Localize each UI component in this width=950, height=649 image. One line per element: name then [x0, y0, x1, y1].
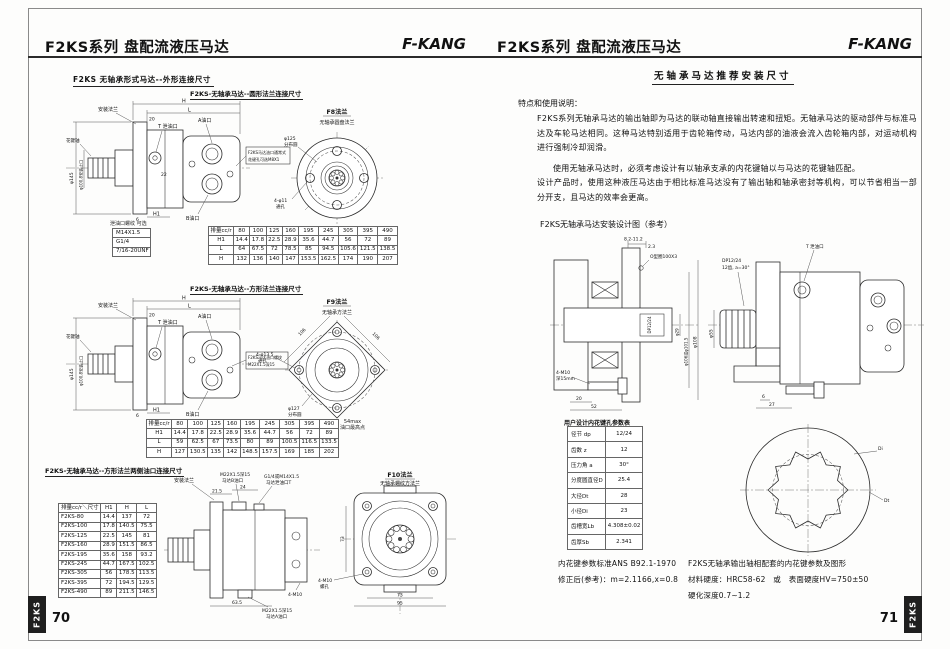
table-cell: 129.5	[137, 579, 157, 588]
spline-match-note: F2KS无轴承输出轴相配套的内花键参数及图形 材料硬度：HRC58-62 或 表…	[688, 556, 923, 604]
table-cell: 排量cc/r＼尺寸	[59, 504, 101, 513]
table-cell: 116.5	[299, 438, 319, 447]
edge-dim-label: 106	[297, 327, 307, 337]
table-row: 排量cc/r80100125160195245305395490	[209, 227, 398, 236]
table-cell: 89	[319, 429, 339, 438]
table-cell: F2KS-125	[59, 532, 101, 541]
table-cell: 73.5	[224, 438, 240, 447]
table-cell: 44.7	[101, 560, 117, 569]
dim-label: 20	[149, 117, 155, 123]
table-cell: 59	[172, 438, 188, 447]
table-row: F2KS-16028.9151.586.5	[59, 541, 157, 550]
table-cell: 211.5	[117, 588, 137, 597]
dim-label: 73	[340, 536, 346, 542]
table-cell: 35.6	[240, 429, 260, 438]
table-cell: H1	[147, 429, 172, 438]
table-cell: 89	[101, 588, 117, 597]
table-cell: 56	[280, 429, 300, 438]
table-cell: 85	[299, 245, 319, 254]
dim-label: φ145	[69, 172, 75, 184]
table-cell: 压力角 a	[568, 457, 606, 472]
table-cell: F2KS-305	[59, 569, 101, 578]
table-row: G1/4	[113, 238, 151, 247]
table-cell: 102.5	[137, 560, 157, 569]
callout-drain-port: T 泄油口	[157, 319, 178, 326]
table-cell: 22.5	[208, 429, 224, 438]
dim-label: φ106或φ101.5	[683, 337, 689, 366]
table-cell: 12/24	[605, 427, 643, 442]
round-flange-view: F8法兰 无轴承圆盘法兰 φ125 分布圆 4-φ11 通孔	[274, 108, 383, 224]
table-row: F2KS-19535.615893.2	[59, 551, 157, 560]
table-cell: 75.5	[137, 522, 157, 531]
table-cell: 127	[172, 448, 188, 457]
dim-label: H	[182, 99, 186, 105]
round-flange-drawing: H L 20 22 H1 6 φ145 φ100.8安装止口 花键轴 安装法兰 …	[60, 96, 400, 226]
table-cell: 146.5	[137, 588, 157, 597]
dim-label: 20	[576, 396, 582, 402]
table-cell: 28.9	[224, 429, 240, 438]
spline-param-table: 径节 dp12/24齿数 z12压力角 a30°分度圆直径D25.4大径Dt28…	[567, 426, 643, 550]
std-note-line1: 内花键参数标准ANS B92.1-1970	[558, 559, 676, 568]
callout-bolt-circle: φ127	[288, 406, 300, 412]
table-cell: 17.8	[250, 236, 266, 245]
callout-drain-port: T 泄油口	[157, 123, 178, 130]
table-cell: 158	[117, 551, 137, 560]
table-cell: 147	[282, 255, 298, 264]
table-cell: 100	[250, 227, 266, 236]
flange-name-label: F9法兰	[327, 298, 348, 306]
callout-port-b: B油口	[186, 215, 199, 222]
table-cell: 72	[266, 245, 282, 254]
table-cell: 23	[605, 503, 643, 518]
dim-label: φ145	[69, 368, 75, 380]
callout-spline: DP12/24	[722, 258, 741, 264]
table-cell: 齿数 z	[568, 442, 606, 457]
table-row: 小径Di23	[568, 503, 643, 518]
callout-port-b: 马达B油口	[222, 477, 243, 484]
motor-side-view: φ55 DP12/24 12齿, a=30° T 泄油口 6 27	[708, 243, 924, 408]
table-cell: 121.5	[358, 245, 378, 254]
table-cell: 14.4	[101, 513, 117, 522]
callout-bolt-circle: 分布圆	[288, 411, 302, 418]
table-cell: 202	[319, 448, 339, 457]
table-cell: 178.5	[117, 569, 137, 578]
dim-label: 20	[149, 313, 155, 319]
table-cell: 135	[208, 448, 224, 457]
dim-label: 22	[161, 172, 167, 178]
dim-label: 6	[762, 394, 765, 400]
table-cell: 153.5	[299, 255, 319, 264]
table-cell: 44.7	[318, 236, 338, 245]
dual-port-drawing: 安装法兰 M22X1.5深15 马达B油口 G1/4或M14X1.5 马达泄油口…	[160, 470, 470, 620]
callout-port-a: M22X1.5深15	[262, 607, 292, 614]
dim-label: Dt	[884, 498, 889, 504]
table-cell: 148.5	[240, 448, 260, 457]
right-page-number: 71	[876, 611, 898, 626]
dim-label: 63.5	[232, 600, 242, 606]
model-dim-table: 排量cc/r＼尺寸H1HLF2KS-8014.413772F2KS-10017.…	[58, 503, 157, 598]
std-note-line2: 修正后(参考)：m=2.1166,x=0.8	[558, 575, 678, 584]
table-cell: 大径Dt	[568, 488, 606, 503]
callout-port-b: B油口	[186, 411, 199, 418]
table-cell: 113.5	[137, 569, 157, 578]
callout-bolt-circle: φ125	[284, 136, 296, 142]
table-cell: 160	[224, 420, 240, 429]
spline-profile-drawing: Di Dt	[738, 422, 930, 560]
table-cell: 169	[280, 448, 300, 457]
table-cell: 167.5	[117, 560, 137, 569]
table-cell: 22.5	[266, 236, 282, 245]
table-cell: 28	[605, 488, 643, 503]
table-cell: 100	[188, 420, 208, 429]
table-cell: 35.6	[299, 236, 319, 245]
square-flange-drawing: H L 20 H1 6 φ145 φ100.8安装止口 花键轴 安装法兰 T 泄…	[60, 294, 400, 418]
table-cell: L	[209, 245, 234, 254]
table-row: 齿厚Sb2.341	[568, 534, 643, 549]
spline-mark-label: DP12/24	[647, 316, 652, 333]
flange-desc-label: 无轴承方法兰	[322, 309, 352, 316]
header-rule	[28, 56, 922, 58]
f10-flange-view: F10法兰 无轴承螺纹方法兰 73 73 95 4-M10 螺孔	[318, 471, 458, 614]
callout-drain: 马达泄油口T	[266, 479, 291, 486]
table-cell: 140.5	[117, 522, 137, 531]
callout-bolt-holes: 通孔	[276, 203, 285, 210]
table-row: F2KS-39572194.5129.5	[59, 579, 157, 588]
table-cell: F2KS-245	[59, 560, 101, 569]
callout-bolts: 深15mm	[556, 375, 575, 382]
table-cell: H1	[101, 504, 117, 513]
table-cell: L	[147, 438, 172, 447]
table-row: H127130.5135142148.5157.5169185202	[147, 448, 339, 457]
table-cell: M14X1.5	[113, 229, 151, 238]
table-cell: 17.8	[101, 522, 117, 531]
table-cell: 齿槽宽Lb	[568, 519, 606, 534]
intro-p1: F2KS系列无轴承马达的输出轴即为马达的联动轴直接输出转速和扭矩。无轴承马达的驱…	[537, 112, 917, 156]
callout-bolt-holes: 4-φ13.5	[256, 352, 274, 358]
note-54-desc: 油口最高点	[340, 425, 365, 431]
dim-label: 52	[591, 404, 597, 410]
left-page-title: F2KS系列 盘配流液压马达	[45, 36, 229, 57]
table-cell: 395	[358, 227, 378, 236]
table-cell: 137	[117, 513, 137, 522]
callout-drain: T 泄油口	[805, 243, 824, 250]
table-cell: 72	[101, 579, 117, 588]
table-row: L5962.56773.58089100.5116.5133.5	[147, 438, 339, 447]
dim-label: φ100.8安装止口	[78, 160, 84, 190]
table-row: 排量cc/r80100125160195245305395490	[147, 420, 339, 429]
table-cell: 64	[234, 245, 250, 254]
table-cell: 305	[280, 420, 300, 429]
table-row: 大径Dt28	[568, 488, 643, 503]
table-cell: 157.5	[260, 448, 280, 457]
table-cell: 56	[338, 236, 358, 245]
dim-label: L	[188, 304, 191, 310]
dim-label: φ100.8安装止口	[78, 356, 84, 386]
table-cell: 133.5	[319, 438, 339, 447]
diagram-title: F2KS无轴承马达安装设计图（参考）	[540, 219, 672, 230]
square-dim-table: 排量cc/r80100125160195245305395490H114.417…	[146, 419, 339, 458]
table-cell: F2KS-160	[59, 541, 101, 550]
table-cell: 排量cc/r	[147, 420, 172, 429]
table-cell: 160	[282, 227, 298, 236]
table-cell: 94.5	[318, 245, 338, 254]
table-row: 径节 dp12/24	[568, 427, 643, 442]
flange-desc-label: 无轴承圆盘法兰	[319, 119, 354, 126]
table-row: 压力角 a30°	[568, 457, 643, 472]
callout-mount-flange: 安装法兰	[174, 477, 194, 484]
table-cell: 132	[234, 255, 250, 264]
table-cell: 56	[101, 569, 117, 578]
table-cell: 小径Di	[568, 503, 606, 518]
table-cell: 490	[319, 420, 339, 429]
table-cell: 81	[137, 532, 157, 541]
callout-port-a: A油口	[198, 117, 211, 124]
callout-oring: O型圈100X3	[650, 253, 677, 260]
table-row: H132136140147153.5162.5174190207	[209, 255, 398, 264]
match-note-line1: F2KS无轴承输出轴相配套的内花键参数及图形	[688, 559, 846, 568]
table-cell: H	[209, 255, 234, 264]
table-cell: F2KS-80	[59, 513, 101, 522]
table-row: H114.417.822.528.935.644.7567289	[209, 236, 398, 245]
table-cell: 305	[338, 227, 358, 236]
flange-name-label: F8法兰	[327, 108, 348, 116]
table-row: F2KS-8014.413772	[59, 513, 157, 522]
table-cell: 86.5	[137, 541, 157, 550]
match-note-line2: 材料硬度：HRC58-62 或 表面硬度HV=750±50	[688, 575, 869, 584]
install-drawing: DP12/24 8.2-11.2 2.3 O型圈100X3 φ29 φ106或φ…	[548, 236, 930, 416]
intro-paragraphs: F2KS系列无轴承马达的输出轴即为马达的联动轴直接输出转速和扭矩。无轴承马达的驱…	[537, 112, 917, 205]
table-cell: H	[147, 448, 172, 457]
dim-label: 24	[240, 485, 246, 491]
table-cell: 89	[378, 236, 398, 245]
flange-desc-label: 无轴承螺纹方法兰	[380, 480, 420, 487]
callout-spline-shaft: 花键轴	[66, 333, 80, 340]
dim-label: 21.5	[212, 489, 222, 495]
table-cell: 14.4	[172, 429, 188, 438]
table-cell: 2.341	[605, 534, 643, 549]
dim-label: 95	[397, 601, 403, 607]
table-cell: H	[117, 504, 137, 513]
callout-drain: G1/4或M14X1.5	[264, 473, 299, 480]
table-cell: 245	[318, 227, 338, 236]
callout-note: 花键孔可选M8X1	[248, 156, 280, 162]
motor-side-view	[66, 318, 250, 410]
table-cell: 排量cc/r	[209, 227, 234, 236]
section-title-outline-dims: F2KS 无轴承形式马达--外形连接尺寸	[73, 74, 214, 87]
table-cell: 径节 dp	[568, 427, 606, 442]
dim-label: 27	[769, 402, 775, 408]
table-cell: 490	[378, 227, 398, 236]
left-brand-logo: F-KANG	[358, 35, 466, 53]
table-cell: 22.5	[101, 532, 117, 541]
dim-label: H	[182, 296, 186, 302]
table-cell: 174	[338, 255, 358, 264]
callout-note: F2KS马达油口通常式	[248, 149, 286, 155]
callout-mount-flange: 安装法兰	[98, 106, 118, 113]
table-row: M14X1.5	[113, 229, 151, 238]
table-cell: 89	[260, 438, 280, 447]
motor-side-view	[164, 502, 320, 598]
right-page-title: F2KS系列 盘配流液压马达	[497, 36, 681, 57]
table-cell: 28.9	[101, 541, 117, 550]
table-row: L6467.57278.58594.5105.6121.5138.5	[209, 245, 398, 254]
table-cell: 125	[208, 420, 224, 429]
callout-bolts: 4-M10	[556, 370, 570, 376]
dim-label: H1	[153, 212, 160, 218]
table-row: 齿数 z12	[568, 442, 643, 457]
dim-label: φ55	[709, 329, 715, 338]
callout-bolt-holes: 4-M10	[318, 578, 332, 584]
table-cell: 138.5	[378, 245, 398, 254]
table-cell: 395	[299, 420, 319, 429]
table-cell: 195	[299, 227, 319, 236]
section-title-install-dims: 无轴承马达推荐安装尺寸	[652, 68, 794, 85]
table-cell: 30°	[605, 457, 643, 472]
table-cell: 105.6	[338, 245, 358, 254]
table-cell: 162.5	[318, 255, 338, 264]
table-cell: 130.5	[188, 448, 208, 457]
dim-label: H1	[153, 408, 160, 414]
table-cell: 100.5	[280, 438, 300, 447]
table-cell: 125	[266, 227, 282, 236]
dim-label: 73	[397, 593, 403, 599]
table-cell: 80	[172, 420, 188, 429]
table-cell: 78.5	[282, 245, 298, 254]
table-row: 排量cc/r＼尺寸H1HL	[59, 504, 157, 513]
table-row: F2KS-10017.8140.575.5	[59, 522, 157, 531]
edge-dim-label: 106	[371, 331, 381, 341]
dim-label: Di	[878, 446, 883, 452]
callout-bolt-holes: 螺孔	[320, 583, 329, 590]
table-row: F2KS-30556178.5113.5	[59, 569, 157, 578]
dim-label: 6	[136, 413, 139, 419]
callout-port-b: M22X1.5深15	[220, 471, 250, 478]
table-cell: 12	[605, 442, 643, 457]
thread-table-title: 泄油口螺纹 可选	[110, 221, 147, 227]
flange-name-label: F10法兰	[387, 471, 412, 479]
table-cell: F2KS-490	[59, 588, 101, 597]
table-cell: 195	[240, 420, 260, 429]
table-row: H114.417.822.528.935.644.7567289	[147, 429, 339, 438]
match-note-line3: 硬化深度0.7~1.2	[688, 591, 750, 600]
table-row: F2KS-12522.514581	[59, 532, 157, 541]
table-cell: H1	[209, 236, 234, 245]
table-cell: 245	[260, 420, 280, 429]
thread-table: M14X1.5G1/47/16-20UNF	[112, 228, 151, 257]
table-cell: 72	[137, 513, 157, 522]
table-cell: 72	[299, 429, 319, 438]
table-cell: L	[137, 504, 157, 513]
dim-label: φ108	[693, 336, 699, 348]
table-row: 7/16-20UNF	[113, 247, 151, 256]
table-cell: 67.5	[250, 245, 266, 254]
dim-label: L	[188, 108, 191, 114]
table-cell: 35.6	[101, 551, 117, 560]
callout-bolt: 4-M10	[288, 592, 302, 598]
cross-section-view: DP12/24 8.2-11.2 2.3 O型圈100X3 φ29 φ106或φ…	[550, 237, 700, 411]
callout-mount-flange: 安装法兰	[98, 302, 118, 309]
table-cell: 185	[299, 448, 319, 457]
catalog-spread: F2KS系列 盘配流液压马达 F-KANG F2KS系列 盘配流液压马达 F-K…	[0, 0, 950, 649]
table-cell: 17.8	[188, 429, 208, 438]
table-cell: F2KS-195	[59, 551, 101, 560]
table-row: 齿槽宽Lb4.308±0.02	[568, 519, 643, 534]
right-brand-logo: F-KANG	[804, 35, 912, 53]
right-index-tab: F2KS	[904, 596, 922, 633]
table-cell: 80	[234, 227, 250, 236]
callout-spline: 12齿, a=30°	[722, 265, 750, 271]
callout-bolt-circle: 分布圆	[284, 141, 298, 148]
table-cell: F2KS-395	[59, 579, 101, 588]
callout-bolt-holes: 4-φ11	[274, 198, 287, 204]
table-row: 分度圆直径D25.4	[568, 473, 643, 488]
table-cell: 80	[240, 438, 260, 447]
callout-bolt-holes: 通孔	[258, 357, 267, 364]
table-cell: 7/16-20UNF	[113, 247, 151, 256]
square-flange-view: 106 106 F9法兰 无轴承方法兰 4-φ13.5 通孔 φ127 分布圆	[256, 298, 390, 418]
table-cell: 72	[358, 236, 378, 245]
table-cell: 93.2	[137, 551, 157, 560]
table-cell: 145	[117, 532, 137, 541]
table-cell: 136	[250, 255, 266, 264]
table-row: F2KS-49089211.5146.5	[59, 588, 157, 597]
callout-port-a: A油口	[198, 313, 211, 320]
callout-spline-shaft: 花键轴	[66, 137, 80, 144]
table-row: F2KS-24544.7167.5102.5	[59, 560, 157, 569]
spline-standard-note: 内花键参数标准ANS B92.1-1970 修正后(参考)：m=2.1166,x…	[558, 556, 688, 588]
motor-side-view	[66, 122, 250, 214]
intro-p3: 设计产品时，使用这种液压马达由于相比标准马达没有了输出轴和轴承密封等机构，可以节…	[537, 176, 917, 205]
table-cell: 25.4	[605, 473, 643, 488]
table-cell: 194.5	[117, 579, 137, 588]
table-cell: 190	[358, 255, 378, 264]
table-cell: 4.308±0.02	[605, 519, 643, 534]
table-cell: 67	[208, 438, 224, 447]
table-cell: 140	[266, 255, 282, 264]
left-page-number: 70	[52, 611, 70, 626]
table-cell: 44.7	[260, 429, 280, 438]
intro-p2: 使用无轴承马达时，必须考虑设计有以轴承支承的内花键轴以与马达的花键轴匹配。	[537, 162, 917, 177]
table-cell: 142	[224, 448, 240, 457]
intro-heading: 特点和使用说明：	[518, 98, 582, 109]
table-cell: 14.4	[234, 236, 250, 245]
port-height-note: 54max 油口最高点	[340, 419, 365, 431]
table-cell: 齿厚Sb	[568, 534, 606, 549]
table-cell: 28.9	[282, 236, 298, 245]
dim-label: 8.2-11.2	[624, 237, 643, 243]
table-cell: F2KS-100	[59, 522, 101, 531]
callout-port-a: 马达A油口	[266, 613, 287, 620]
table-cell: 62.5	[188, 438, 208, 447]
dim-label: 2.3	[648, 244, 655, 250]
dim-label: φ29	[675, 328, 680, 336]
table-cell: 207	[378, 255, 398, 264]
round-dim-table: 排量cc/r80100125160195245305395490H114.417…	[208, 226, 398, 265]
table-cell: 分度圆直径D	[568, 473, 606, 488]
table-cell: G1/4	[113, 238, 151, 247]
left-index-tab: F2KS	[28, 596, 46, 633]
table-cell: 151.5	[117, 541, 137, 550]
